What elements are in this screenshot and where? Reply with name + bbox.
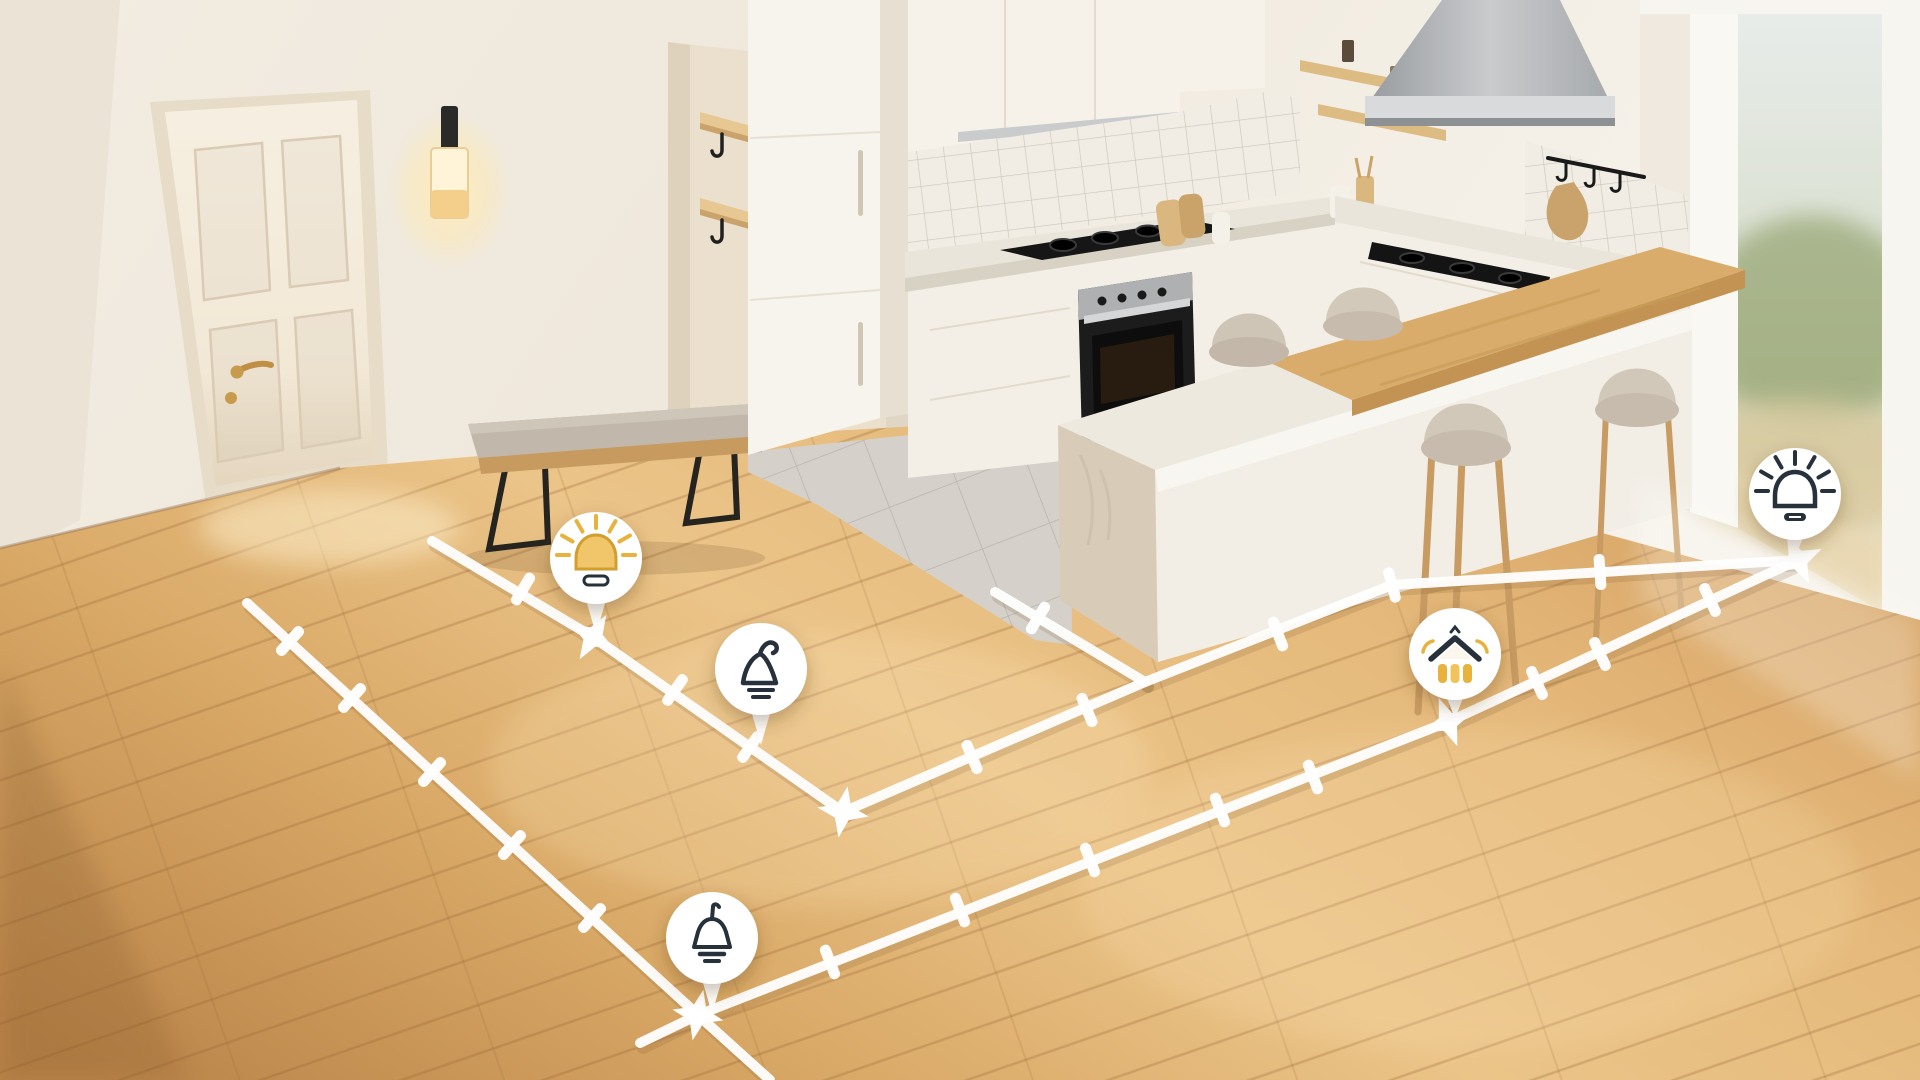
lighting-path-overlay <box>0 0 1920 1080</box>
pin-dome-lamp-outline[interactable] <box>1749 448 1841 559</box>
island-front-line <box>843 682 1145 812</box>
smart-lighting-room-view <box>0 0 1920 1080</box>
island-side-line <box>995 592 1145 682</box>
path-node <box>1593 554 1606 591</box>
island-front-line-shadow <box>846 687 1148 817</box>
pin-balloon[interactable] <box>715 623 807 715</box>
